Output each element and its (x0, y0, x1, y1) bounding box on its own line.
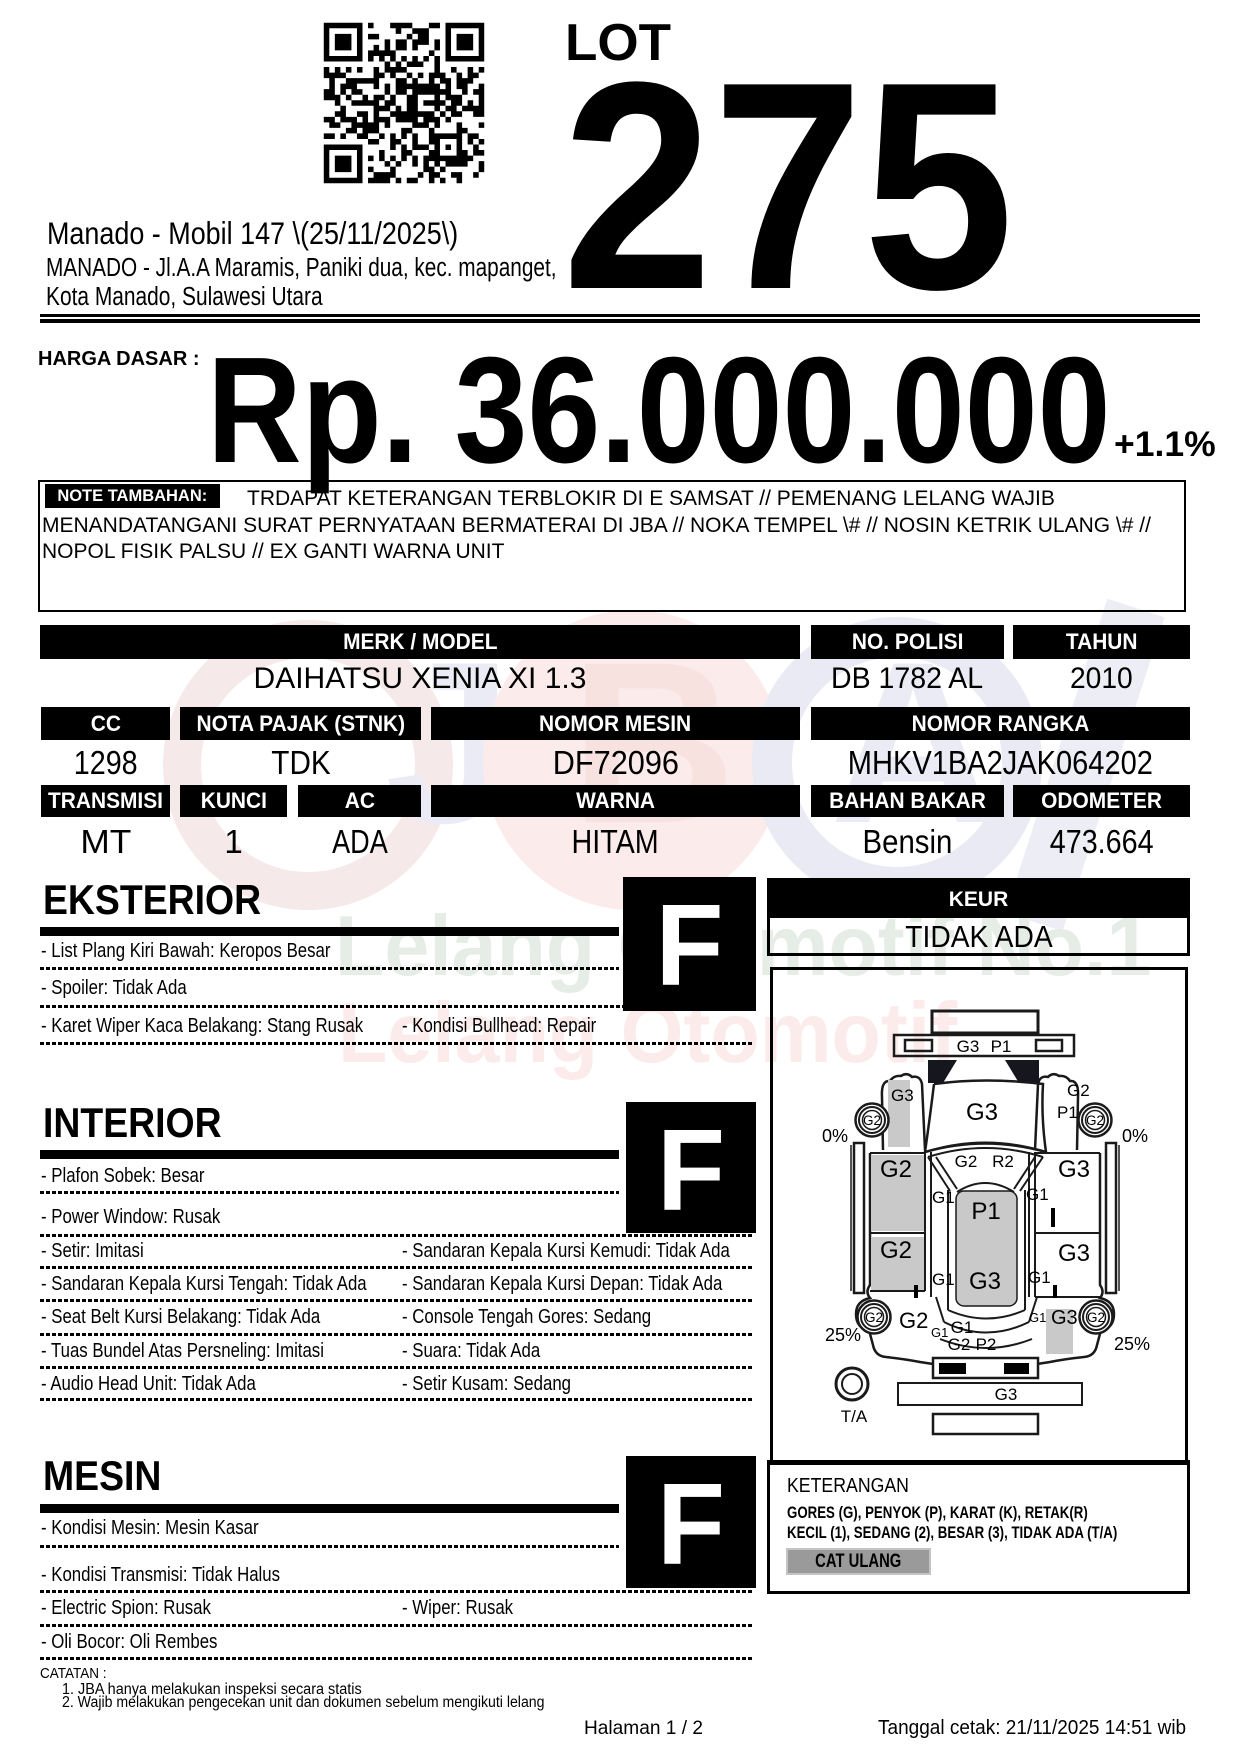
svg-text:25%: 25% (825, 1325, 861, 1345)
svg-text:G2: G2 (880, 1237, 912, 1264)
svg-text:G1: G1 (1029, 1310, 1046, 1325)
svg-text:P2: P2 (976, 1335, 997, 1354)
svg-text:P1: P1 (991, 1037, 1012, 1056)
svg-text:G1: G1 (1026, 1185, 1049, 1204)
svg-text:G1: G1 (932, 1270, 955, 1289)
svg-text:G2: G2 (955, 1152, 978, 1171)
svg-text:G3: G3 (995, 1385, 1018, 1404)
svg-text:G2: G2 (863, 1113, 881, 1128)
svg-text:G3: G3 (1058, 1156, 1090, 1183)
svg-text:G3: G3 (1058, 1240, 1090, 1267)
svg-text:G3: G3 (891, 1086, 914, 1105)
svg-text:G3: G3 (969, 1268, 1001, 1295)
svg-text:G3: G3 (966, 1099, 998, 1126)
svg-text:G3: G3 (957, 1037, 980, 1056)
svg-text:25%: 25% (1114, 1334, 1150, 1354)
svg-text:G2: G2 (899, 1308, 928, 1333)
svg-text:G2: G2 (1087, 1310, 1105, 1325)
svg-text:0%: 0% (822, 1126, 848, 1146)
svg-text:P1: P1 (971, 1198, 1000, 1225)
svg-text:G2: G2 (1067, 1081, 1090, 1100)
svg-text:T/A: T/A (841, 1407, 868, 1426)
svg-text:P1: P1 (1057, 1103, 1078, 1122)
svg-text:G1: G1 (932, 1188, 955, 1207)
svg-text:G2: G2 (1086, 1113, 1104, 1128)
svg-text:G2: G2 (948, 1335, 971, 1354)
svg-text:G1: G1 (931, 1325, 948, 1340)
svg-text:0%: 0% (1122, 1126, 1148, 1146)
svg-text:G3: G3 (1051, 1307, 1078, 1329)
svg-text:G1: G1 (1028, 1268, 1051, 1287)
svg-text:R2: R2 (992, 1152, 1014, 1171)
svg-text:G2: G2 (880, 1156, 912, 1183)
svg-text:G2: G2 (865, 1310, 883, 1325)
